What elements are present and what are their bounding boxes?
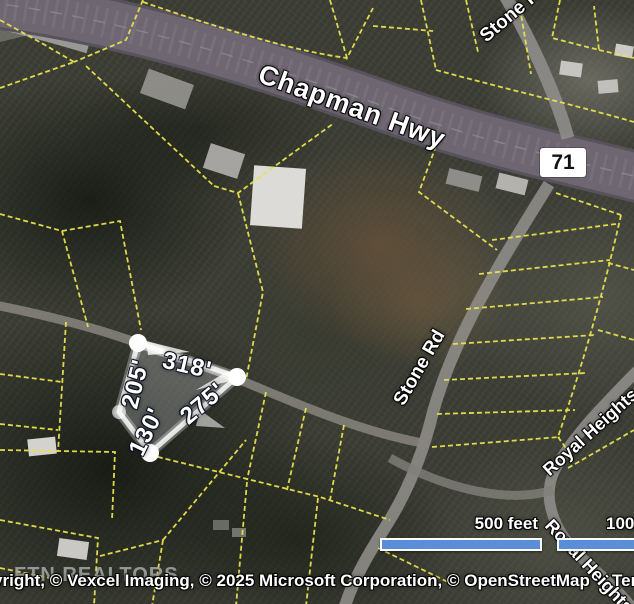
structure [232,528,246,537]
scale-bar-segment-1 [380,538,542,551]
terms-link[interactable]: Terms [612,571,634,591]
house [559,61,583,78]
house [598,79,619,94]
parcel-vertex-dot [228,368,246,386]
scale-label-500-feet: 500 feet [380,514,538,534]
parcel-vertex-dot [112,405,126,419]
map-attribution: Copyright, © Vexcel Imaging, © 2025 Micr… [0,571,590,591]
house [57,538,89,560]
scale-label-1000-feet: 1000 feet [606,514,634,534]
house [27,437,57,457]
parcel-vertex-dot [129,334,147,352]
route-71-shield: 71 [540,148,586,177]
scale-bar-segment-2 [557,538,634,551]
structure [213,520,229,530]
building [496,173,529,196]
large-building [250,165,306,228]
building [446,168,483,192]
building [203,143,245,179]
buildings-layer [27,44,634,560]
parking-lot [140,69,194,110]
aerial-parcel-map[interactable]: Chapman Hwy 71 Stone Rd Stone Rd Royal H… [0,0,634,604]
